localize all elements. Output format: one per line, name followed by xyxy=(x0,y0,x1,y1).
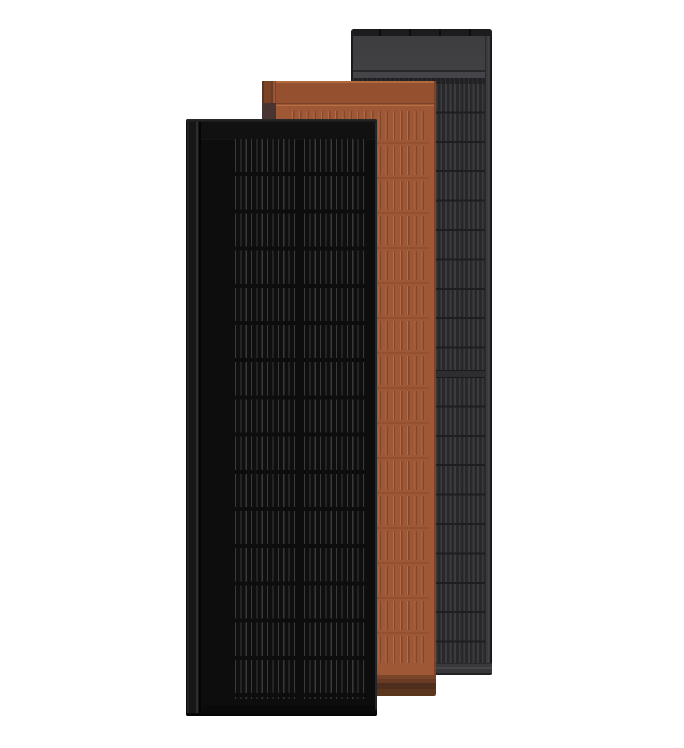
terracotta-right-edge xyxy=(434,81,436,677)
anthracite-header-sheet xyxy=(351,36,492,70)
anthracite-mounting-strip xyxy=(351,29,492,36)
black-cell-column-1 xyxy=(235,139,296,699)
black-cell-column-2 xyxy=(304,139,366,699)
black-right-edge xyxy=(375,122,377,710)
black-top-bar xyxy=(201,122,375,140)
solar-panel-black xyxy=(186,119,377,716)
black-left-flange xyxy=(186,122,201,713)
terracotta-header-seam xyxy=(262,103,436,106)
product-image-canvas xyxy=(0,0,684,748)
anthracite-right-flange xyxy=(485,36,492,663)
terracotta-header-band xyxy=(262,83,436,103)
black-bottom-edge xyxy=(186,713,377,716)
black-bottom-bar xyxy=(201,705,377,713)
